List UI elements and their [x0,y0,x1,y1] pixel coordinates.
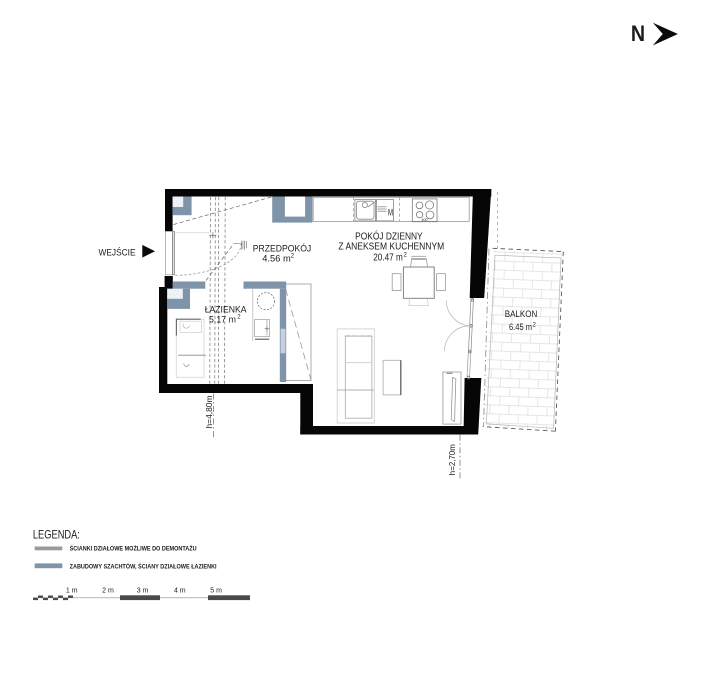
svg-text:2: 2 [404,252,408,258]
svg-text:4 m: 4 m [174,588,186,595]
svg-text:1 m: 1 m [66,588,78,595]
svg-text:LEGENDA:: LEGENDA: [33,528,80,542]
svg-text:4.56 m: 4.56 m [262,253,291,264]
svg-text:h=4,80m: h=4,80m [204,396,214,429]
svg-text:5.17 m: 5.17 m [209,315,236,326]
svg-text:ZABUDOWY SZACHTÓW, ŚCIANY DZIA: ZABUDOWY SZACHTÓW, ŚCIANY DZIAŁOWE ŁAZIE… [70,561,217,570]
svg-text:Z ANEKSEM KUCHENNYM: Z ANEKSEM KUCHENNYM [338,241,444,252]
svg-text:ŚCIANKI DZIAŁOWE MOŻLIWE DO DE: ŚCIANKI DZIAŁOWE MOŻLIWE DO DEMONTAŻU [70,544,197,553]
svg-text:M: M [388,207,393,217]
svg-text:3 m: 3 m [137,588,149,595]
svg-text:20.47 m: 20.47 m [373,252,403,263]
svg-text:400: 400 [422,218,428,222]
svg-text:5 m: 5 m [210,588,222,595]
svg-text:2 m: 2 m [102,588,114,595]
svg-text:WEJŚCIE: WEJŚCIE [99,246,136,257]
svg-text:6.45 m: 6.45 m [509,322,532,333]
svg-text:N: N [631,21,645,46]
svg-text:BALKON: BALKON [505,309,538,320]
svg-text:h=2,70m: h=2,70m [447,444,457,475]
